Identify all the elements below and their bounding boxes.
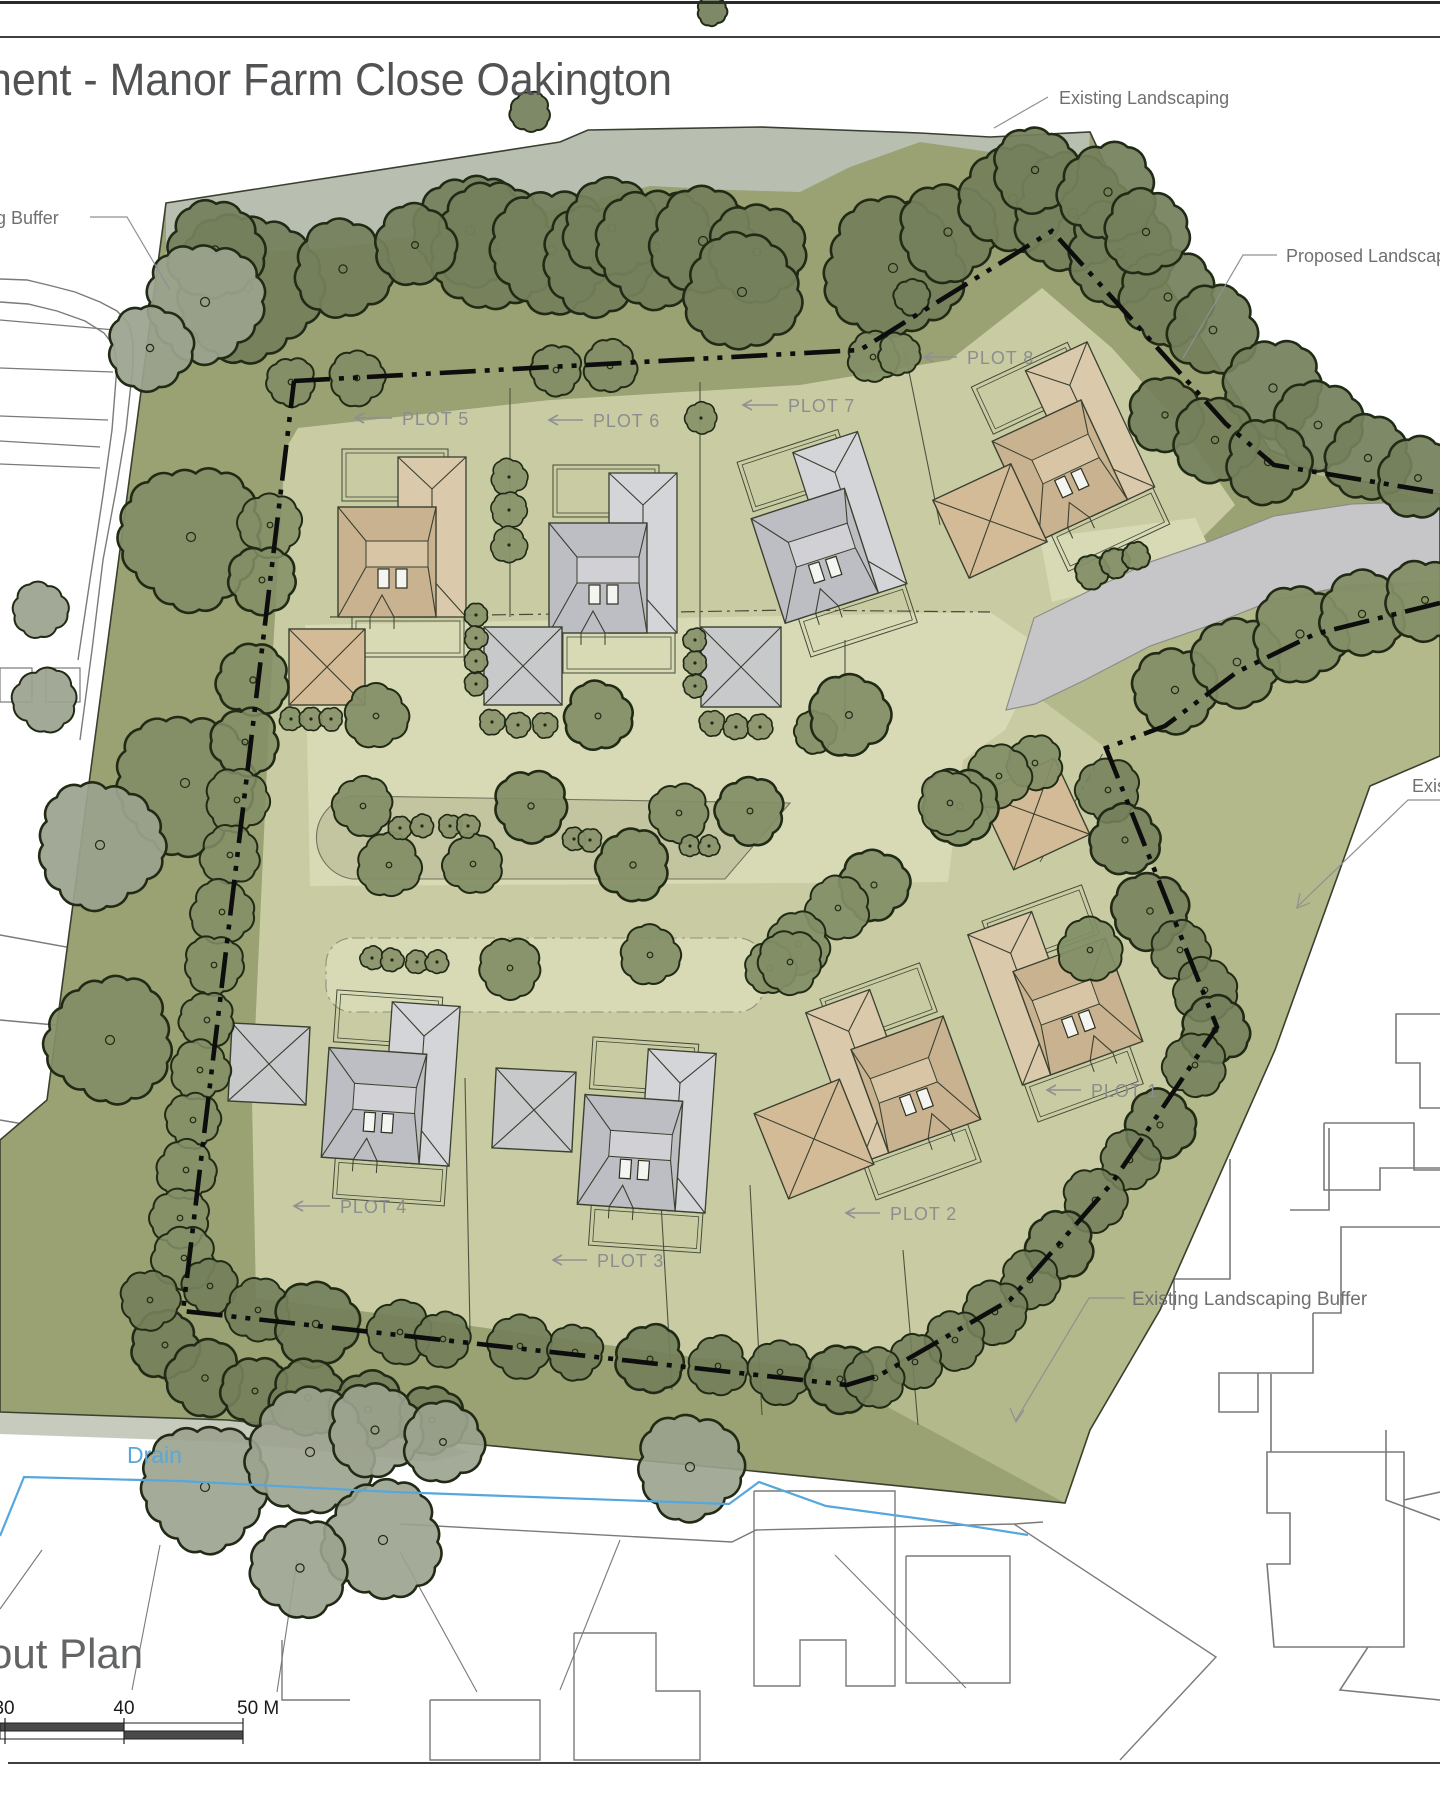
svg-text:PLOT 5: PLOT 5 <box>402 409 469 429</box>
svg-text:Exis: Exis <box>1412 776 1440 796</box>
svg-text:yout Plan: yout Plan <box>0 1630 143 1677</box>
svg-text:Proposed Landscapi: Proposed Landscapi <box>1286 246 1440 266</box>
svg-text:PLOT 1: PLOT 1 <box>1091 1081 1158 1101</box>
svg-text:nent - Manor Farm Close Oaking: nent - Manor Farm Close Oakington <box>0 54 672 105</box>
svg-text:40: 40 <box>113 1698 134 1719</box>
svg-text:Existing Landscaping: Existing Landscaping <box>1059 88 1229 108</box>
svg-text:50 M: 50 M <box>237 1698 279 1719</box>
svg-text:PLOT 7: PLOT 7 <box>788 396 855 416</box>
svg-text:PLOT 2: PLOT 2 <box>890 1204 957 1224</box>
svg-text:Existing Landscaping Buffer: Existing Landscaping Buffer <box>1132 1289 1368 1310</box>
svg-text:30: 30 <box>0 1698 15 1719</box>
svg-text:PLOT 3: PLOT 3 <box>597 1251 664 1271</box>
svg-text:PLOT 6: PLOT 6 <box>593 411 660 431</box>
svg-text:ping Buffer: ping Buffer <box>0 208 59 228</box>
svg-text:PLOT 8: PLOT 8 <box>967 348 1034 368</box>
svg-text:Drain: Drain <box>127 1442 182 1468</box>
svg-text:PLOT 4: PLOT 4 <box>340 1197 407 1217</box>
